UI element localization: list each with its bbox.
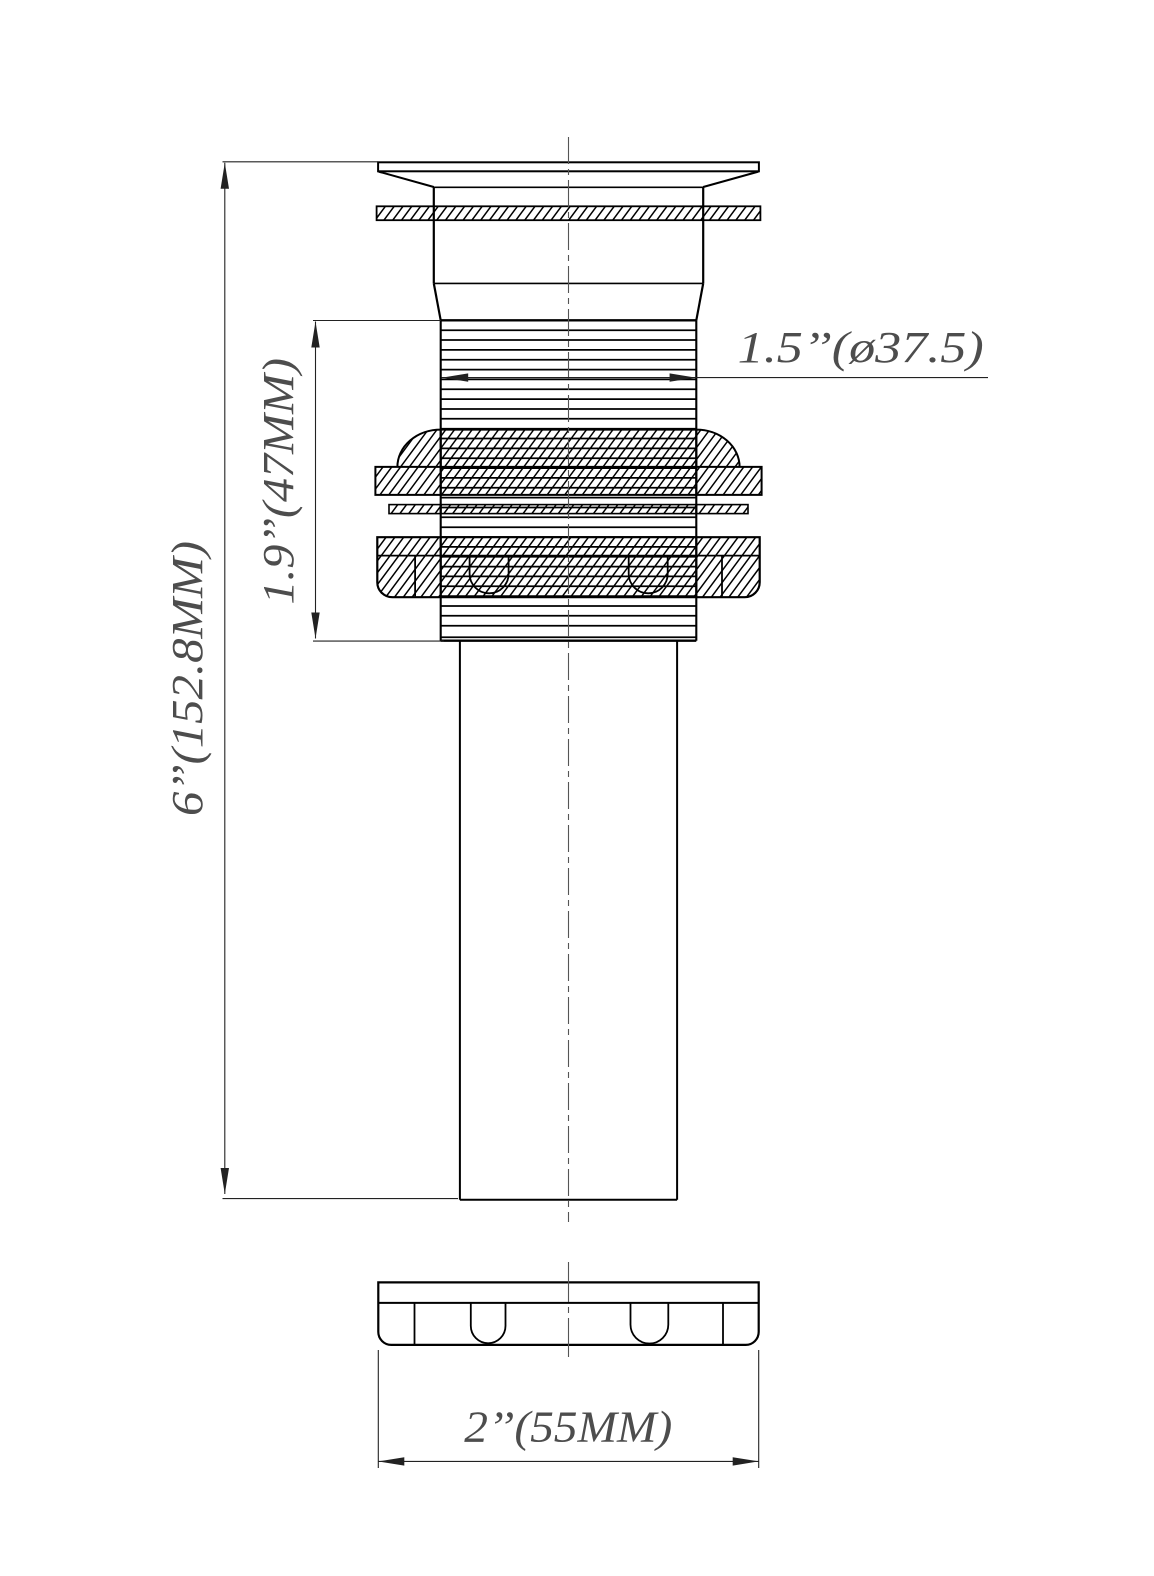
svg-text:1.5’’(ø37.5): 1.5’’(ø37.5) <box>738 323 984 372</box>
svg-text:1.9’’(47MM): 1.9’’(47MM) <box>254 358 303 605</box>
svg-text:6’’(152.8MM): 6’’(152.8MM) <box>163 541 212 816</box>
svg-text:2’’(55MM): 2’’(55MM) <box>464 1403 672 1452</box>
